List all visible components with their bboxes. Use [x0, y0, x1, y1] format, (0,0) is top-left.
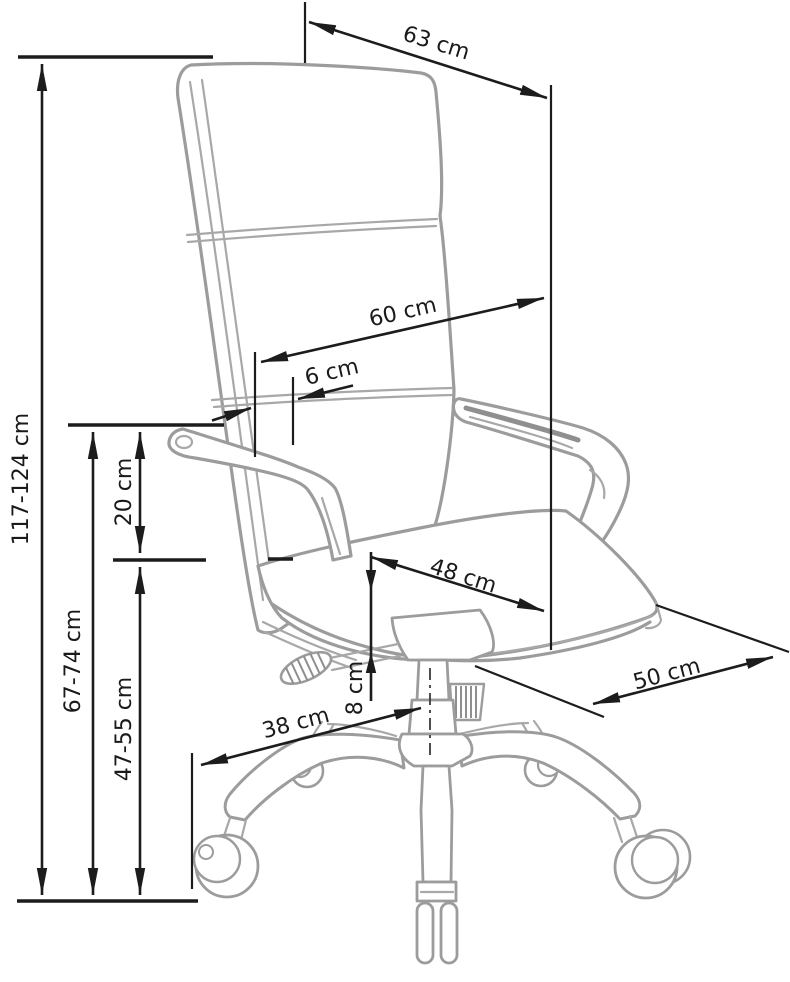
- ext-50-left: [475, 666, 604, 717]
- dim-label-seat-thickness: 8 cm: [343, 661, 368, 716]
- chair-drawing: [169, 64, 690, 963]
- caster-right: [614, 816, 690, 898]
- caster-front: [417, 903, 457, 963]
- chair-dimension-diagram: 117-124 cm 67-74 cm 20 cm 47-55 cm 63 cm…: [0, 0, 790, 982]
- diagram-stage: 117-124 cm 67-74 cm 20 cm 47-55 cm 63 cm…: [0, 0, 790, 982]
- dim-label-armrest-floor-height: 67-74 cm: [61, 609, 86, 713]
- dim-label-seat-height: 47-55 cm: [112, 677, 137, 781]
- dim-label-seat-depth: 50 cm: [631, 654, 704, 696]
- dim-label-total-height: 117-124 cm: [9, 413, 34, 545]
- ext-50-right: [656, 605, 789, 652]
- base-leg-front: [417, 766, 456, 901]
- base-hub: [399, 734, 472, 766]
- dim-label-armrest-seat-height: 20 cm: [112, 458, 137, 527]
- caster-left: [194, 818, 258, 897]
- dim-label-top-width: 63 cm: [400, 22, 473, 66]
